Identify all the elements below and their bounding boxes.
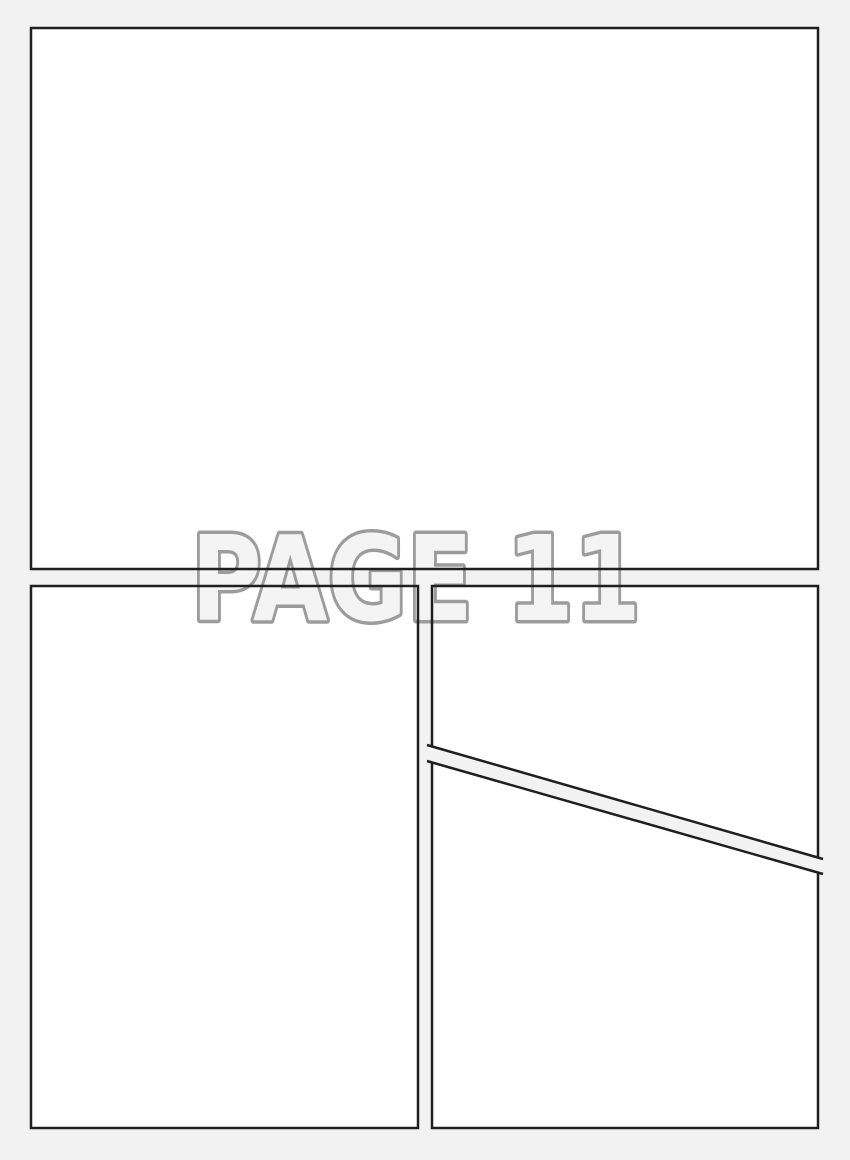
panel-top <box>31 28 818 569</box>
page-number-label: PAGE 11 <box>191 510 641 648</box>
comic-page-template: PAGE 11 <box>0 0 850 1160</box>
panel-bottom-left <box>31 586 418 1128</box>
